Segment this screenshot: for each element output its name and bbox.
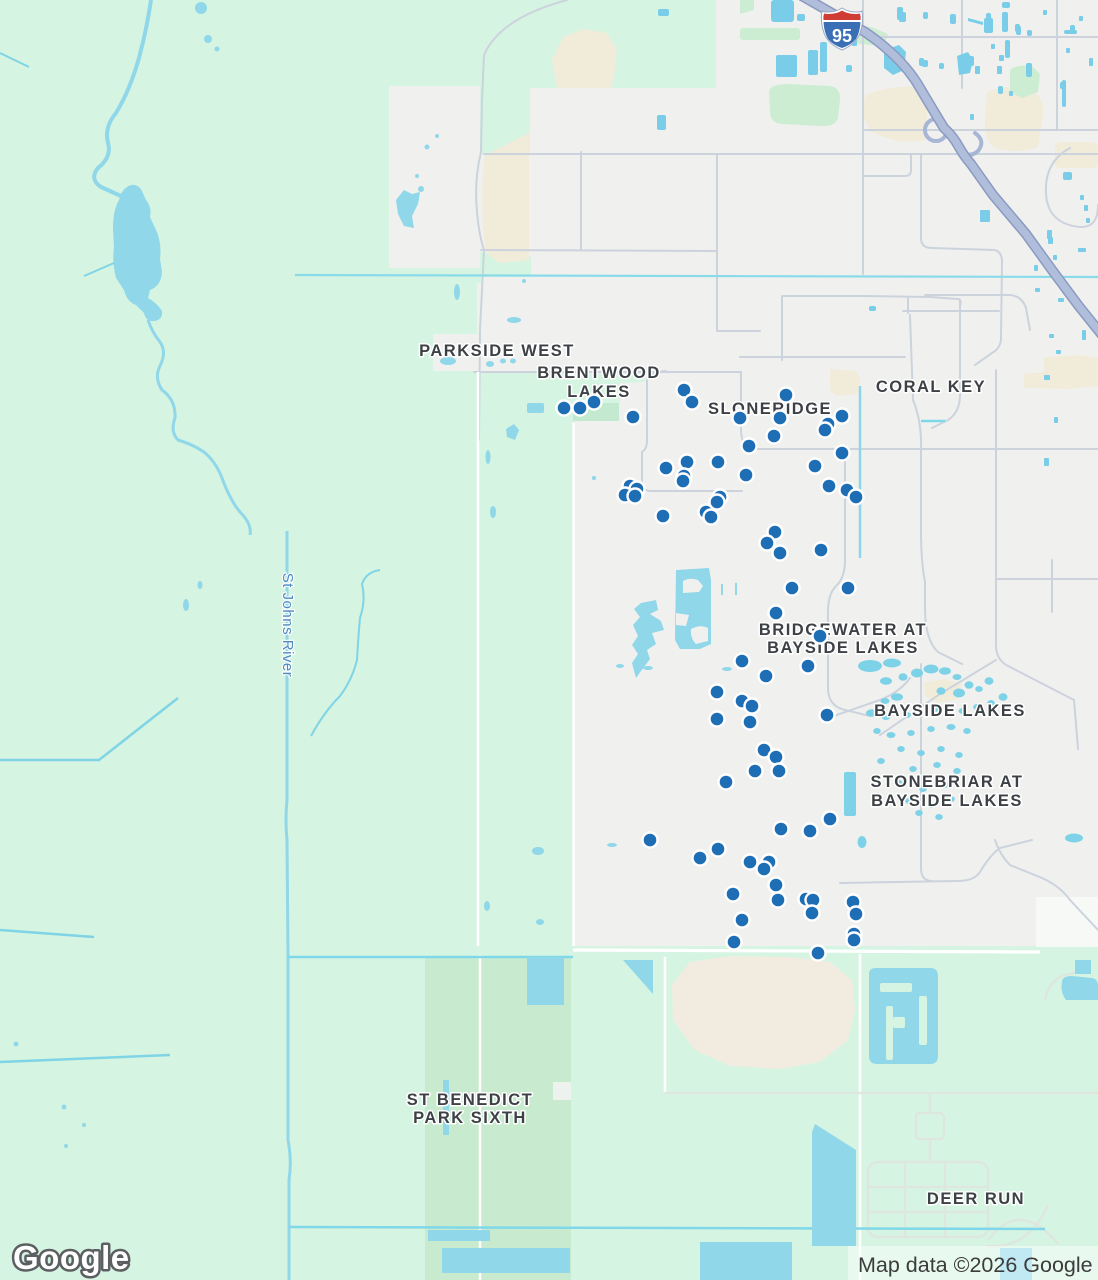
svg-text:ST BENEDICT: ST BENEDICT — [407, 1091, 534, 1109]
svg-text:CORAL KEY: CORAL KEY — [876, 378, 986, 396]
svg-text:Map data ©2026 Google: Map data ©2026 Google — [858, 1253, 1093, 1277]
svg-text:PARK SIXTH: PARK SIXTH — [413, 1109, 527, 1127]
svg-text:BAYSIDE LAKES: BAYSIDE LAKES — [767, 639, 919, 657]
svg-text:BRENTWOOD: BRENTWOOD — [537, 364, 661, 382]
svg-text:BAYSIDE LAKES: BAYSIDE LAKES — [874, 702, 1026, 720]
svg-text:Google: Google — [13, 1239, 130, 1276]
svg-text:St Johns River: St Johns River — [279, 573, 296, 678]
svg-text:SLONERIDGE: SLONERIDGE — [708, 400, 832, 418]
svg-text:STONEBRIAR AT: STONEBRIAR AT — [870, 773, 1023, 791]
svg-text:BRIDGEWATER AT: BRIDGEWATER AT — [759, 621, 927, 639]
svg-text:PARKSIDE WEST: PARKSIDE WEST — [419, 342, 575, 360]
svg-text:95: 95 — [832, 26, 852, 46]
svg-text:BAYSIDE LAKES: BAYSIDE LAKES — [871, 792, 1023, 810]
svg-text:DEER RUN: DEER RUN — [927, 1190, 1025, 1208]
